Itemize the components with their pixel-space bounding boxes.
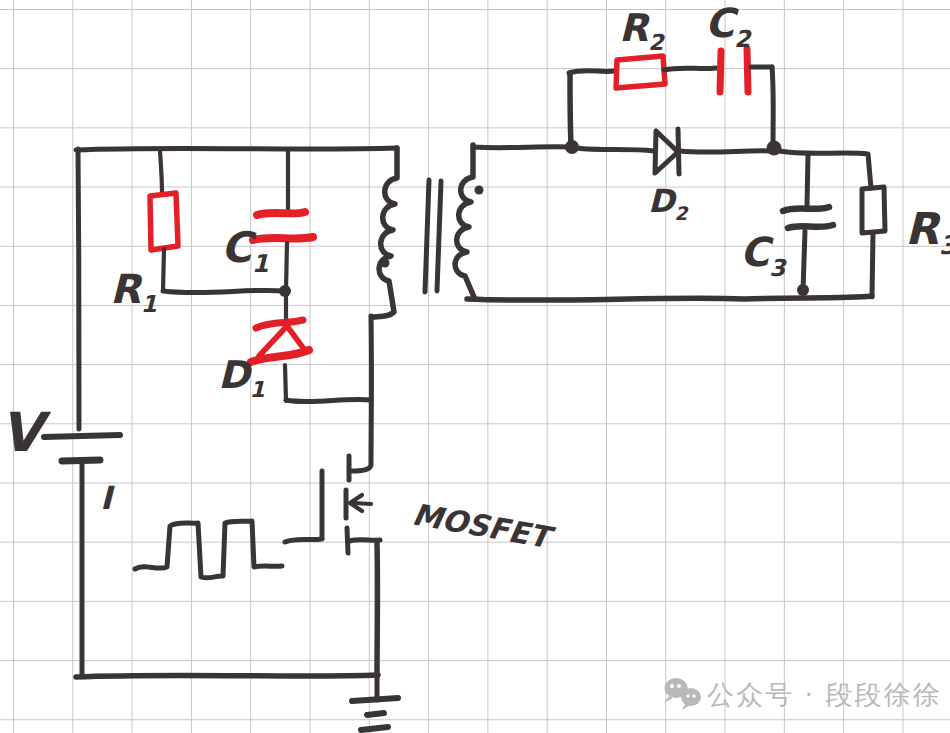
junction-snubber-left <box>565 140 579 154</box>
watermark: 公众号 · 段段徐徐 <box>664 678 942 710</box>
c3-plate-top <box>783 207 829 211</box>
c2-plate-left <box>720 51 721 92</box>
rc-snubber <box>569 49 773 146</box>
label-r2: R2 <box>619 6 665 55</box>
c3-plate-bottom <box>788 225 833 228</box>
d1-triangle-left <box>259 326 287 356</box>
d1-triangle-right <box>287 326 304 349</box>
r3-body <box>862 187 885 233</box>
wire-junction-to-r3 <box>779 151 871 188</box>
ground-symbol <box>352 676 398 730</box>
mosfet-symbol <box>285 316 380 676</box>
wire-top-primary <box>76 148 397 150</box>
junction-c3-bottom <box>797 284 809 296</box>
label-mosfet: MOSFET <box>410 496 558 555</box>
snubber-right-riser <box>772 67 773 144</box>
zener-diode-d1 <box>251 291 371 402</box>
mosfet-arrow-line <box>354 503 371 504</box>
resistor-r3 <box>862 187 885 297</box>
ground-bar-3 <box>361 727 388 730</box>
ground-bar-2 <box>367 713 384 715</box>
primary-phase-dot <box>381 259 390 268</box>
secondary-winding <box>455 145 474 297</box>
d2-triangle <box>655 131 678 173</box>
battery-symbol <box>44 435 120 461</box>
d1-lead-bottom <box>285 365 286 401</box>
label-c2: C2 <box>705 0 752 52</box>
snubber-left-riser <box>570 74 571 146</box>
label-c1: C1 <box>221 223 269 278</box>
watermark-text: 公众号 · 段段徐徐 <box>707 679 942 710</box>
ground-bar-1 <box>352 698 398 701</box>
c3-lead-bottom <box>803 231 805 291</box>
r1-lead-bottom <box>163 249 164 291</box>
mosfet-drain-wire <box>352 316 371 471</box>
c1-lead-bottom <box>286 243 287 291</box>
battery-plate-short <box>62 460 100 461</box>
grid-paper-canvas: V I R1 C1 D1 R2 C2 D2 C3 R3 MOSFET <box>0 0 950 733</box>
wire-junction-to-d2 <box>576 148 654 151</box>
diode-d2 <box>655 129 679 174</box>
wire-left-top <box>78 149 79 429</box>
c1-plate-top <box>257 212 305 215</box>
wire-top-secondary-left <box>473 147 570 148</box>
c2-plate-right <box>747 49 748 92</box>
transformer <box>372 145 484 317</box>
capacitor-c3 <box>783 154 833 291</box>
r2-body <box>616 56 665 88</box>
d1-cathode-bar <box>256 320 303 328</box>
label-c3: C3 <box>740 229 787 281</box>
snubber-mid-wire <box>664 68 716 70</box>
wire-r1-to-junction <box>163 290 284 292</box>
core-line-left <box>425 180 429 292</box>
wire-bottom-secondary <box>467 296 872 300</box>
secondary-phase-dot <box>475 186 484 195</box>
junction-snubber-right <box>767 141 782 156</box>
wire-bottom-primary <box>76 675 378 677</box>
d2-cathode-bar <box>678 129 679 174</box>
wire-d2-to-junction <box>680 151 771 152</box>
label-v: V <box>0 401 52 464</box>
label-r1: R1 <box>110 266 157 317</box>
snubber-top-left-wire <box>569 71 614 73</box>
label-i: I <box>100 479 115 517</box>
core-line-right <box>437 181 441 291</box>
r3-lead-bottom <box>872 233 873 297</box>
mosfet-gate-lead <box>285 539 322 542</box>
labels: V I R1 C1 D1 R2 C2 D2 C3 R3 MOSFET <box>0 0 950 556</box>
label-d2: D2 <box>648 182 690 224</box>
label-r3: R3 <box>905 203 950 260</box>
wechat-icon <box>664 678 701 710</box>
circuit-schematic: V I R1 C1 D1 R2 C2 D2 C3 R3 MOSFET <box>0 0 950 733</box>
r1-lead-top <box>160 151 162 192</box>
primary-winding <box>372 148 397 317</box>
junction-dots <box>279 140 809 297</box>
battery-plate-long <box>44 435 120 437</box>
junction-r1-c1-d1 <box>279 285 291 297</box>
c3-lead-top <box>807 154 808 206</box>
c1-plate-bottom <box>253 237 313 240</box>
wire-d1-to-drain <box>286 399 371 401</box>
gate-pulse-waveform <box>135 521 282 578</box>
r1-body <box>150 193 178 250</box>
